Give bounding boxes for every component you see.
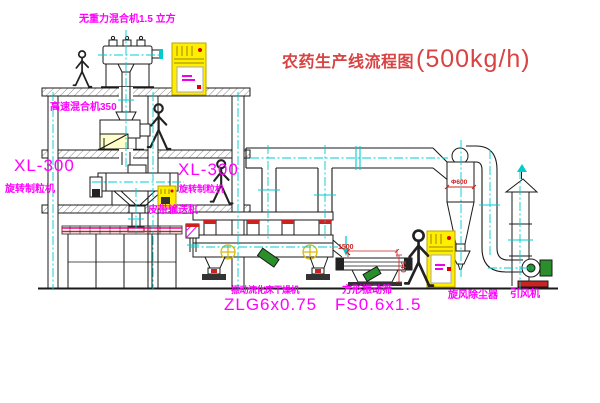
dim-cyclone-diameter: Φ600 xyxy=(451,180,467,187)
label-granulator-left-name: 旋转制粒机 xyxy=(5,185,55,195)
label-dryer-name: 振动流化床干燥机 xyxy=(231,286,299,295)
label-gravity-mixer: 无重力混合机1.5 立方 xyxy=(79,15,176,25)
dim-screen-height: 540 xyxy=(399,261,406,273)
label-fan: 引风机 xyxy=(510,290,540,300)
title-text: 农药生产线流程图 xyxy=(282,48,414,72)
person-figure-roof xyxy=(73,51,91,87)
dim-screen-length: 1500 xyxy=(338,244,354,251)
label-high-speed-mixer: 高速混合机350 xyxy=(50,103,117,113)
cyclone-outlet-duct xyxy=(466,146,523,272)
control-cabinet-right xyxy=(427,231,455,287)
control-cabinet-top xyxy=(172,43,206,95)
label-cyclone: 旋风除尘器 xyxy=(448,291,498,301)
cad-drawing: 农药生产线流程图 (500kg/h) 无重力混合机1.5 立方 高速混合机350… xyxy=(0,0,600,403)
label-granulator-mid-model: XL-300 xyxy=(178,161,239,178)
label-screen-model: FS0.6x1.5 xyxy=(335,296,422,313)
induced-draft-fan xyxy=(518,259,552,287)
label-belt-conveyor: 皮带输送机 xyxy=(148,206,198,216)
belt-conveyor xyxy=(62,226,182,288)
fluid-bed-dryer xyxy=(186,212,333,280)
diagram-title: 农药生产线流程图 (500kg/h) xyxy=(282,45,531,74)
label-dryer-model: ZLG6x0.75 xyxy=(224,296,317,313)
exhaust-duct xyxy=(246,146,449,212)
title-capacity: (500kg/h) xyxy=(416,45,531,74)
label-granulator-mid-name: 旋转制粒机 xyxy=(179,185,224,194)
label-granulator-left-model: XL-300 xyxy=(14,157,75,174)
